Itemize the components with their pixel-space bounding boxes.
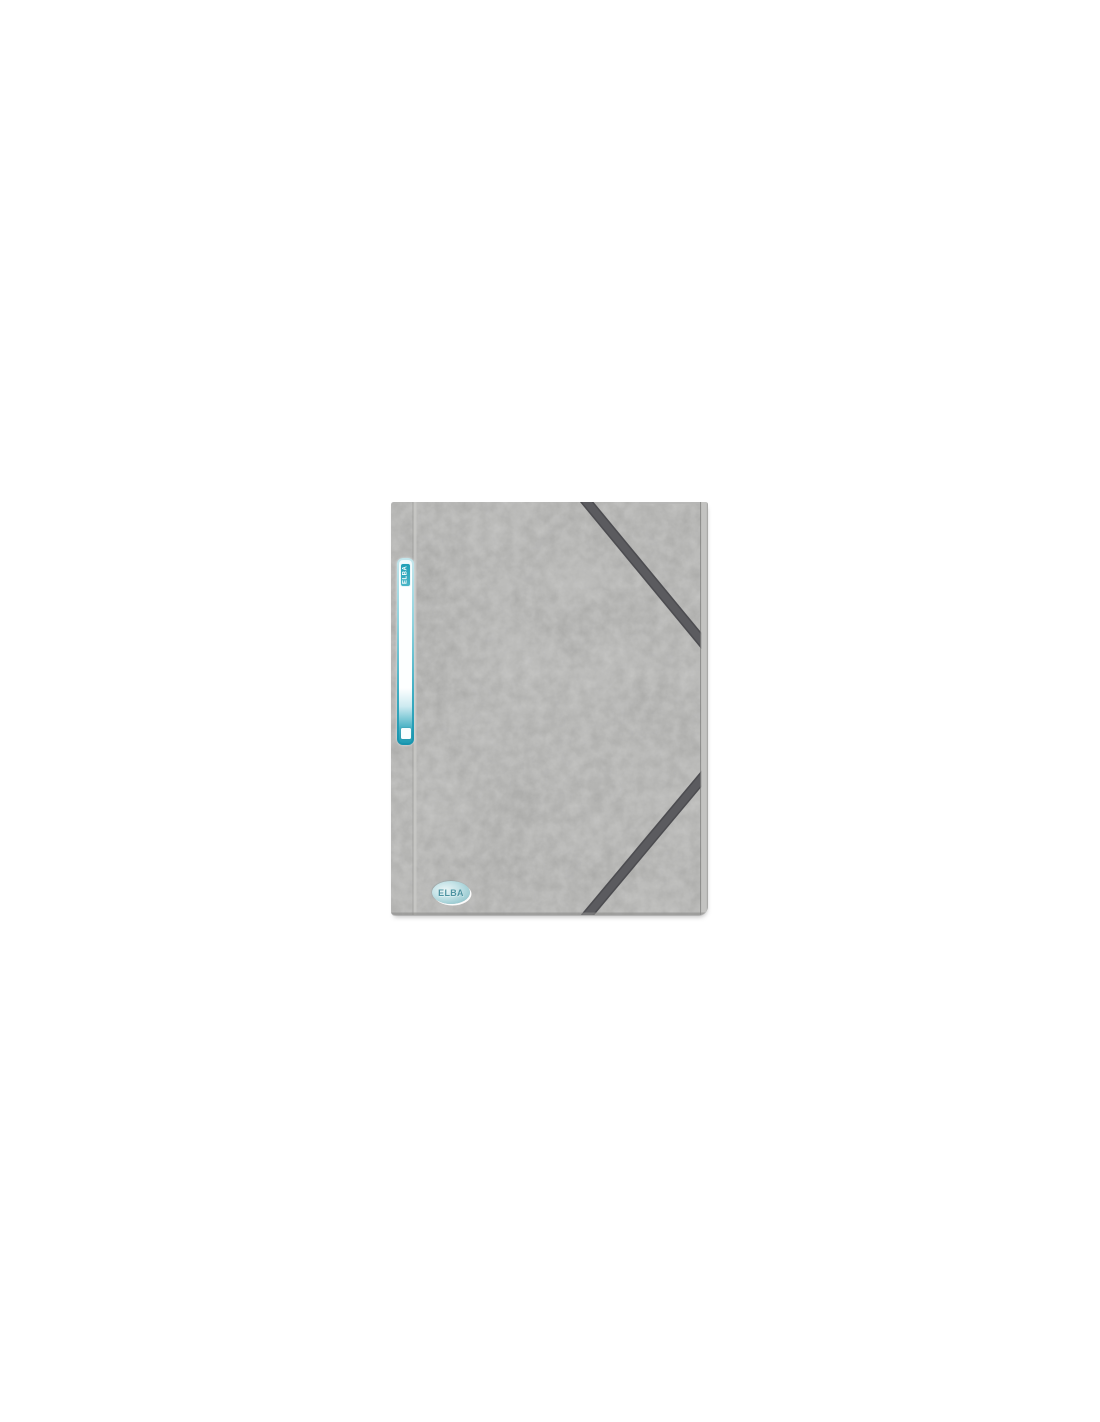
label-holder: ELBA — [397, 558, 414, 745]
folder-texture-grain-dark — [391, 502, 708, 915]
elba-label-tag: ELBA — [400, 563, 411, 587]
label-window — [401, 728, 411, 739]
back-cover-outer-edge — [707, 502, 708, 915]
elba-logo: ELBA — [432, 881, 470, 904]
folder-body-graphic — [391, 502, 708, 915]
bottom-edge-shading — [391, 913, 708, 916]
front-cover-right-edge-line — [700, 502, 701, 915]
back-cover-top-edge — [639, 502, 708, 504]
photo-background: ELBA ELBA — [0, 0, 1100, 1422]
folder-product-photo: ELBA ELBA — [391, 502, 708, 915]
label-insert-strip: ELBA — [399, 560, 412, 743]
